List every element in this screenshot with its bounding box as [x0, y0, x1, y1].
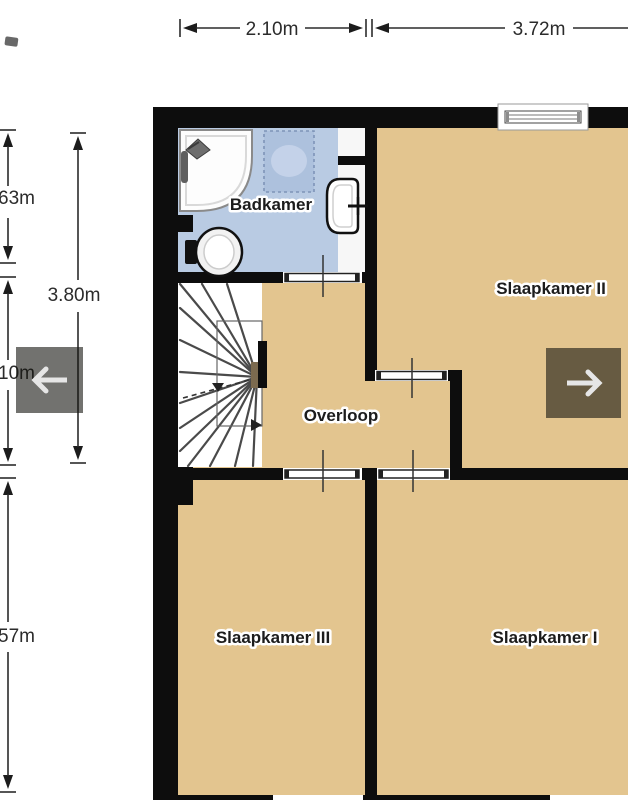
label-landing: Overloop [304, 406, 379, 425]
dimension-top-left: 2.10m [180, 19, 366, 40]
prev-image-button[interactable] [16, 347, 83, 413]
dimension-left-total: 3.80m [48, 133, 101, 463]
wall-pier-toilet [178, 215, 193, 232]
wall-bathroom-south-right [362, 272, 377, 283]
dimension-top-right: 3.72m [372, 19, 628, 40]
window-bottom-right [550, 795, 628, 800]
label-bedroom3: Slaapkamer III [216, 628, 330, 647]
wall-bedroom2-west-lower [450, 381, 462, 480]
window-bottom-left [273, 795, 363, 800]
left-arrow-icon [29, 366, 71, 394]
stair-newel [251, 362, 259, 388]
label-bedroom1: Slaapkamer I [493, 628, 598, 647]
dim-left-seg1-value: 63m [0, 188, 35, 209]
dim-top-right-value: 3.72m [513, 19, 566, 40]
dim-left-total-value: 3.80m [48, 285, 101, 306]
floorplan-drawing: Badkamer Slaapkamer II Overloop Slaapkam… [0, 0, 628, 800]
next-image-button[interactable] [546, 348, 621, 418]
floorplan-viewer: Badkamer Slaapkamer II Overloop Slaapkam… [0, 0, 628, 800]
dim-top-left-value: 2.10m [246, 19, 299, 40]
dimension-left-seg1: 63m [0, 130, 35, 263]
wall-bedroom3-bedroom1 [365, 480, 377, 795]
artifact-mark [4, 36, 18, 47]
label-bedroom2: Slaapkamer II [496, 279, 606, 298]
wall-alcove-stub [338, 156, 367, 165]
dim-left-seg3-value: 57m [0, 626, 35, 647]
right-arrow-icon [563, 369, 605, 397]
stair-handrail [258, 341, 267, 388]
wall-left [153, 107, 178, 800]
dimension-left-seg3: 57m [0, 478, 35, 792]
shower-area [264, 131, 314, 192]
label-bathroom: Badkamer [230, 195, 313, 214]
wall-bathroom-bedroom2 [365, 107, 377, 381]
window-top [498, 104, 588, 130]
floorplan-floors [153, 107, 628, 800]
